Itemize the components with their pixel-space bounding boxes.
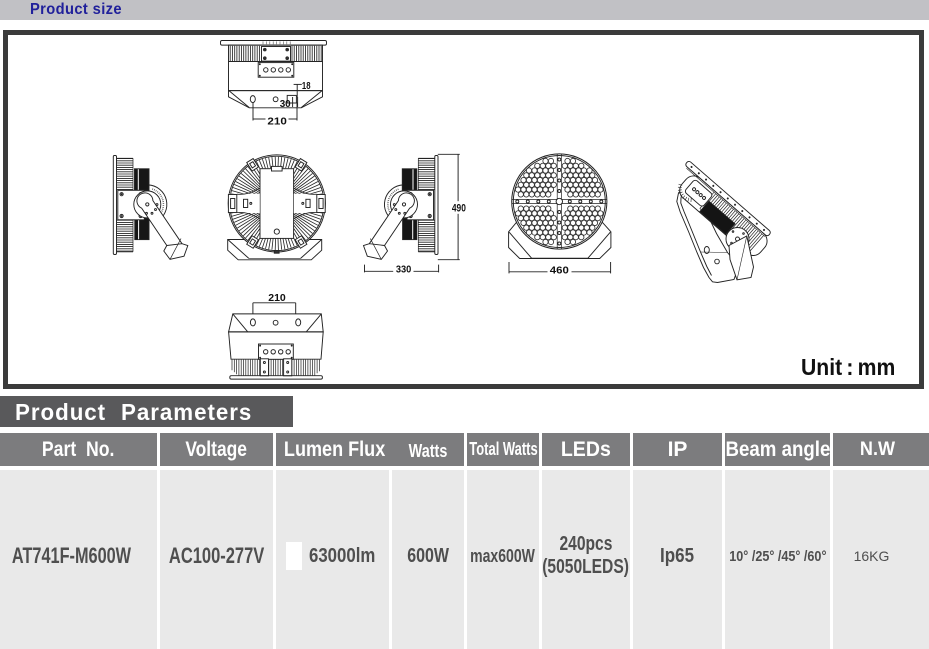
svg-text:460: 460 <box>550 264 569 276</box>
svg-text:210: 210 <box>267 115 287 127</box>
svg-text:30: 30 <box>280 99 291 110</box>
svg-text:490: 490 <box>452 202 466 214</box>
svg-text:210: 210 <box>268 292 286 304</box>
svg-text:18: 18 <box>302 81 311 92</box>
svg-text:330: 330 <box>396 264 412 276</box>
